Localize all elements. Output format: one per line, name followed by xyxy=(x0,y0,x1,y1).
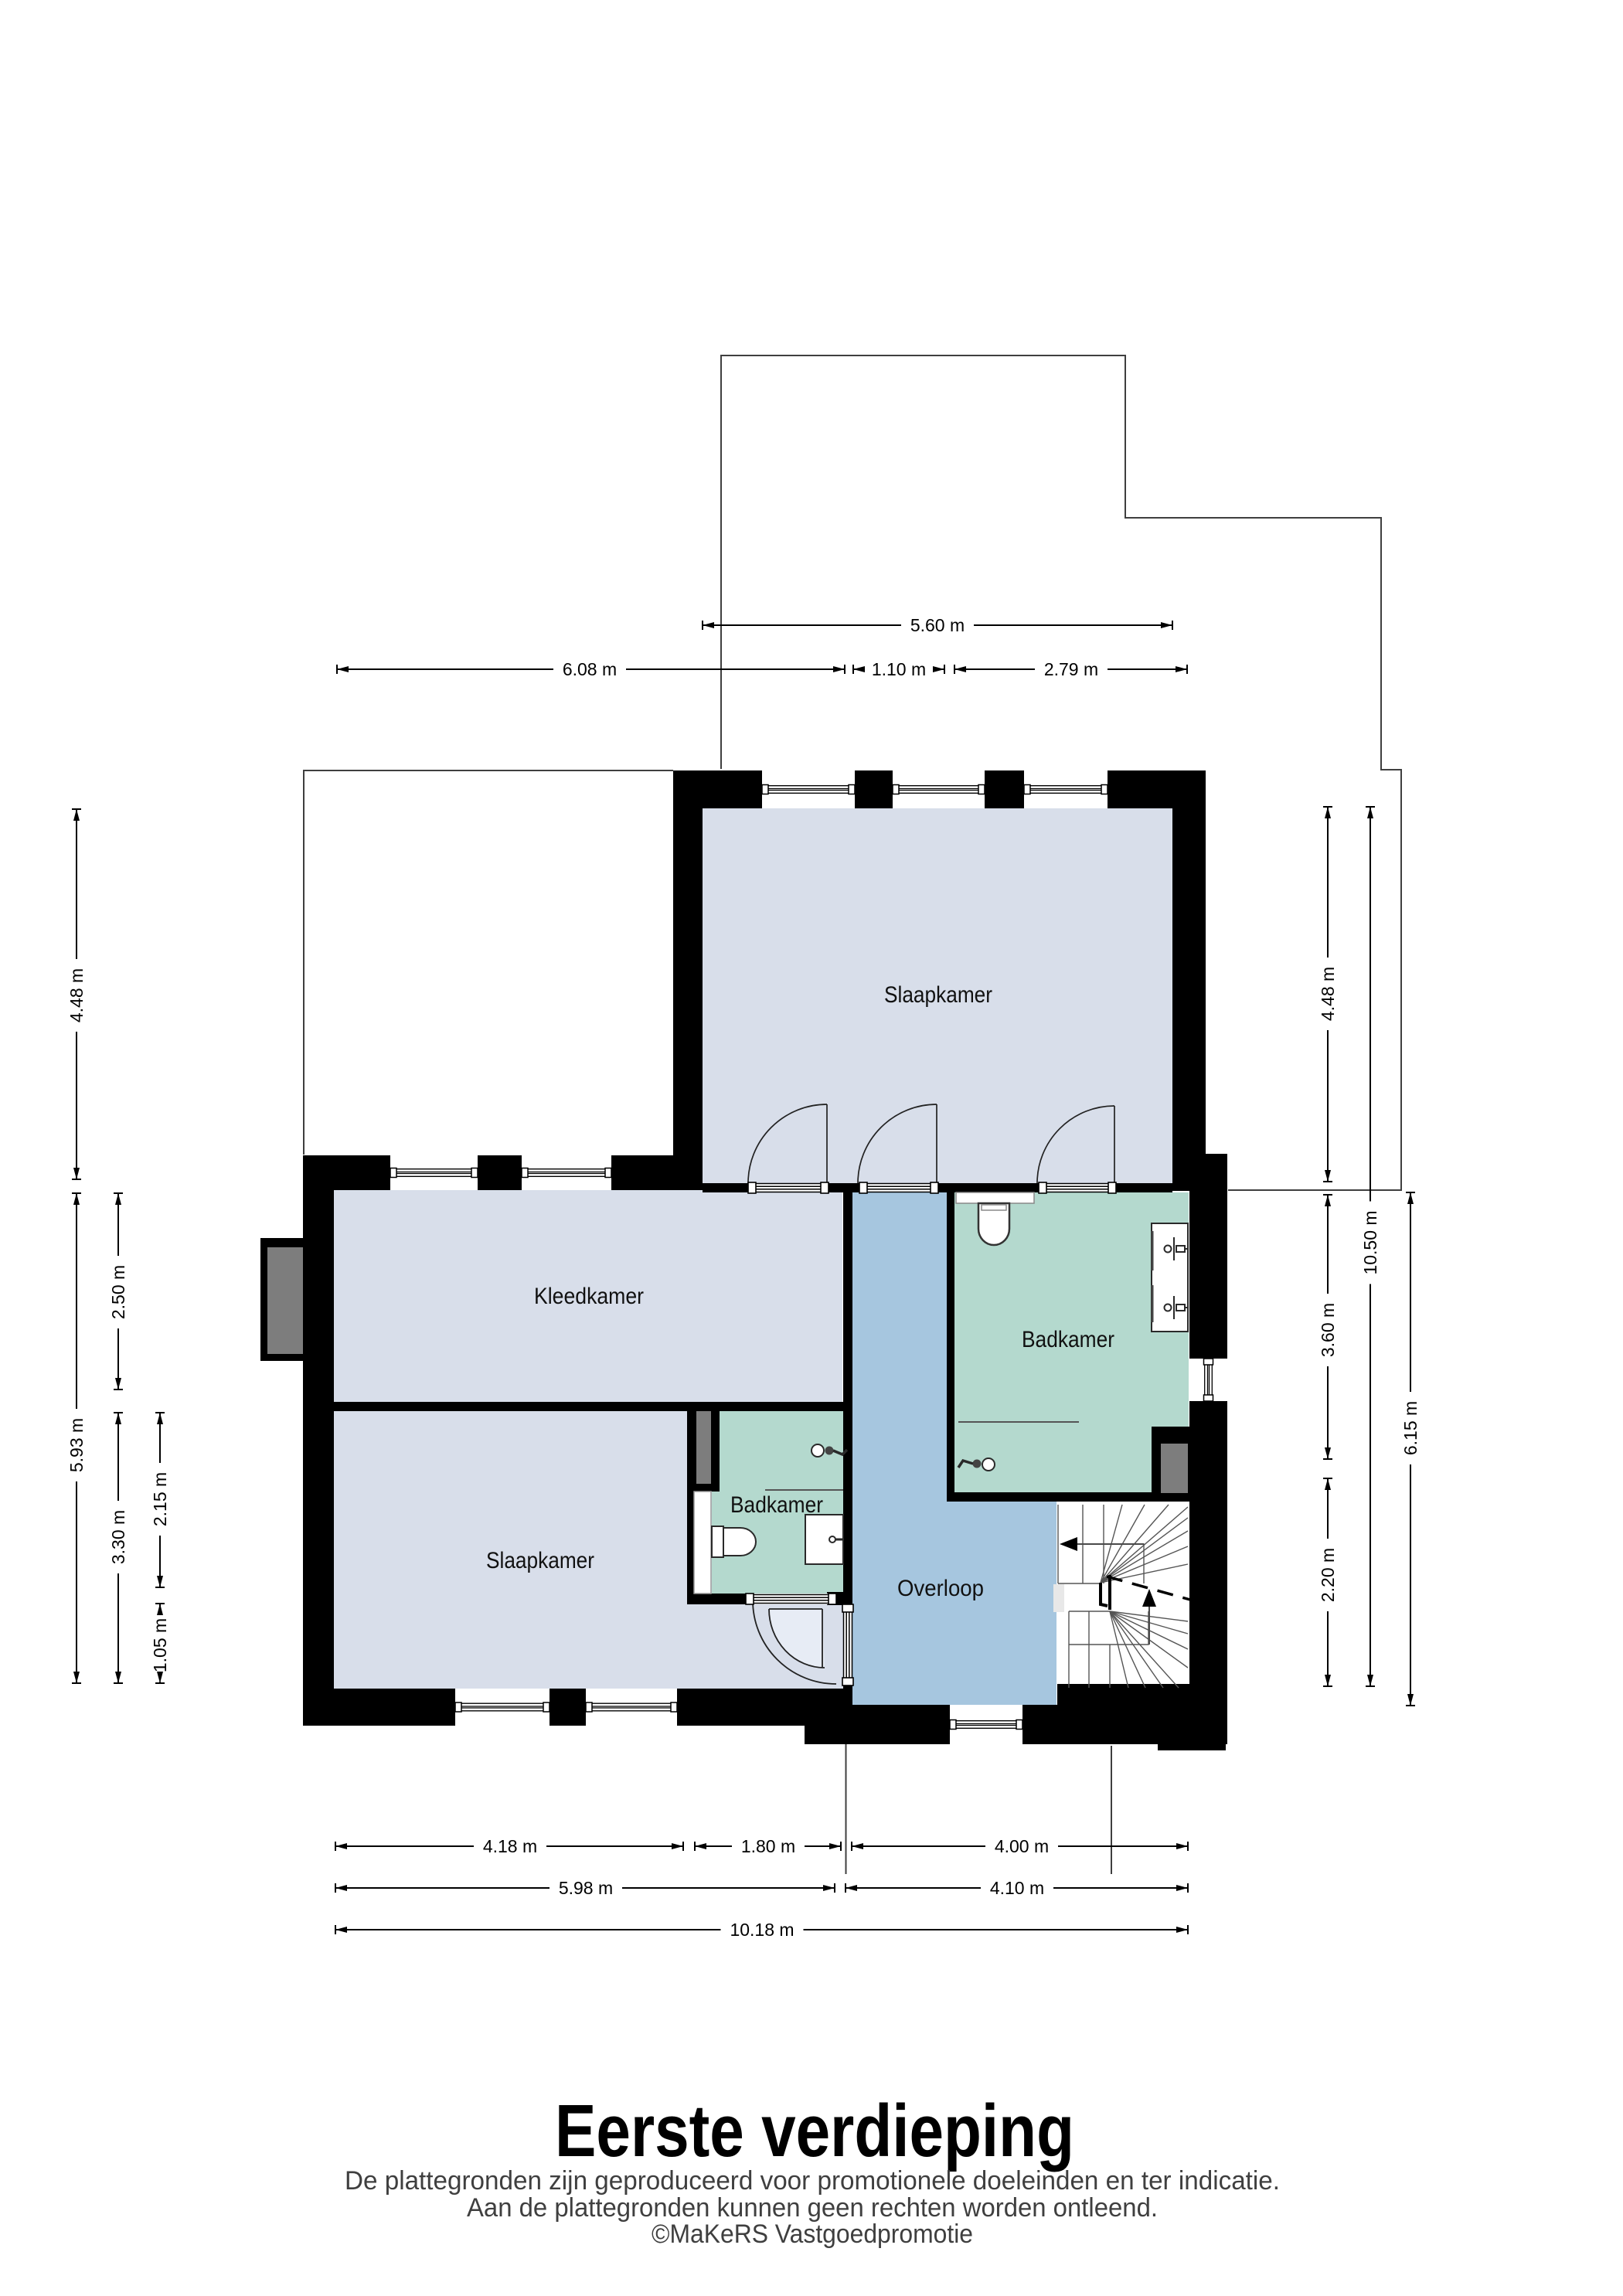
svg-text:6.08 m: 6.08 m xyxy=(563,659,617,679)
svg-text:4.48 m: 4.48 m xyxy=(1318,967,1338,1021)
svg-text:Overloop: Overloop xyxy=(897,1576,984,1601)
svg-text:3.60 m: 3.60 m xyxy=(1318,1303,1338,1357)
svg-text:Eerste verdieping: Eerste verdieping xyxy=(555,2090,1074,2172)
svg-text:1.80 m: 1.80 m xyxy=(741,1836,795,1856)
svg-text:6.15 m: 6.15 m xyxy=(1400,1401,1421,1455)
svg-text:2.15 m: 2.15 m xyxy=(150,1472,170,1526)
svg-text:5.98 m: 5.98 m xyxy=(559,1878,613,1898)
svg-text:Aan de plattegronden kunnen ge: Aan de plattegronden kunnen geen rechten… xyxy=(467,2193,1158,2223)
svg-text:Slaapkamer: Slaapkamer xyxy=(884,982,992,1008)
svg-text:3.30 m: 3.30 m xyxy=(108,1510,128,1564)
svg-text:4.10 m: 4.10 m xyxy=(990,1878,1044,1898)
svg-text:De plattegronden zijn geproduc: De plattegronden zijn geproduceerd voor … xyxy=(345,2166,1280,2196)
svg-text:10.18 m: 10.18 m xyxy=(730,1920,794,1940)
svg-text:Kleedkamer: Kleedkamer xyxy=(534,1284,644,1309)
svg-text:5.60 m: 5.60 m xyxy=(910,615,965,635)
svg-text:4.00 m: 4.00 m xyxy=(995,1836,1049,1856)
svg-text:1.05 m: 1.05 m xyxy=(150,1618,170,1672)
svg-text:©MaKeRS Vastgoedpromotie: ©MaKeRS Vastgoedpromotie xyxy=(652,2219,973,2249)
svg-text:Badkamer: Badkamer xyxy=(730,1492,823,1518)
svg-text:2.79 m: 2.79 m xyxy=(1044,659,1098,679)
svg-text:4.48 m: 4.48 m xyxy=(66,968,87,1022)
svg-text:5.93 m: 5.93 m xyxy=(66,1418,87,1472)
svg-text:2.50 m: 2.50 m xyxy=(108,1265,128,1319)
svg-text:4.18 m: 4.18 m xyxy=(483,1836,537,1856)
svg-text:Slaapkamer: Slaapkamer xyxy=(486,1548,594,1573)
svg-text:1.10 m: 1.10 m xyxy=(872,659,926,679)
svg-text:10.50 m: 10.50 m xyxy=(1360,1210,1380,1274)
svg-text:2.20 m: 2.20 m xyxy=(1318,1548,1338,1602)
svg-text:Badkamer: Badkamer xyxy=(1022,1327,1114,1352)
